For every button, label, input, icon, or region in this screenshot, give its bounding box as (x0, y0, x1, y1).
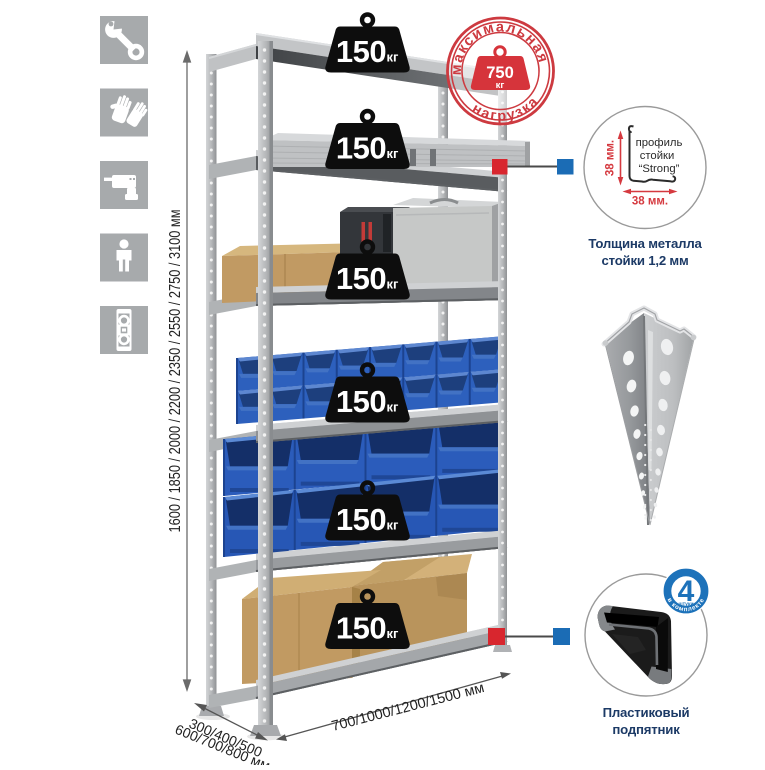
svg-text:150: 150 (336, 611, 386, 646)
svg-text:подпятник: подпятник (612, 722, 680, 737)
svg-text:кг: кг (387, 146, 400, 161)
svg-text:кг: кг (496, 80, 505, 91)
svg-text:стойки: стойки (640, 150, 675, 162)
svg-text:150: 150 (336, 384, 386, 419)
svg-text:150: 150 (336, 131, 386, 166)
svg-text:38 мм.: 38 мм. (605, 140, 617, 176)
svg-text:кг: кг (387, 518, 400, 533)
svg-text:150: 150 (336, 34, 386, 69)
svg-text:1600 / 1850 / 2000 / 2200 / 23: 1600 / 1850 / 2000 / 2200 / 2350 / 2550 … (167, 210, 184, 533)
svg-text:кг: кг (387, 626, 400, 641)
svg-text:150: 150 (336, 502, 386, 537)
svg-text:Пластиковый: Пластиковый (603, 705, 690, 720)
svg-text:профиль: профиль (636, 137, 683, 149)
svg-text:150: 150 (336, 261, 386, 296)
svg-text:кг: кг (387, 50, 400, 65)
svg-text:стойки 1,2 мм: стойки 1,2 мм (601, 253, 688, 268)
svg-text:38 мм.: 38 мм. (632, 196, 668, 208)
svg-text:Толщина металла: Толщина металла (588, 236, 702, 251)
svg-text:кг: кг (387, 400, 400, 415)
svg-text:“Strong”: “Strong” (639, 163, 680, 175)
svg-text:кг: кг (387, 277, 400, 292)
